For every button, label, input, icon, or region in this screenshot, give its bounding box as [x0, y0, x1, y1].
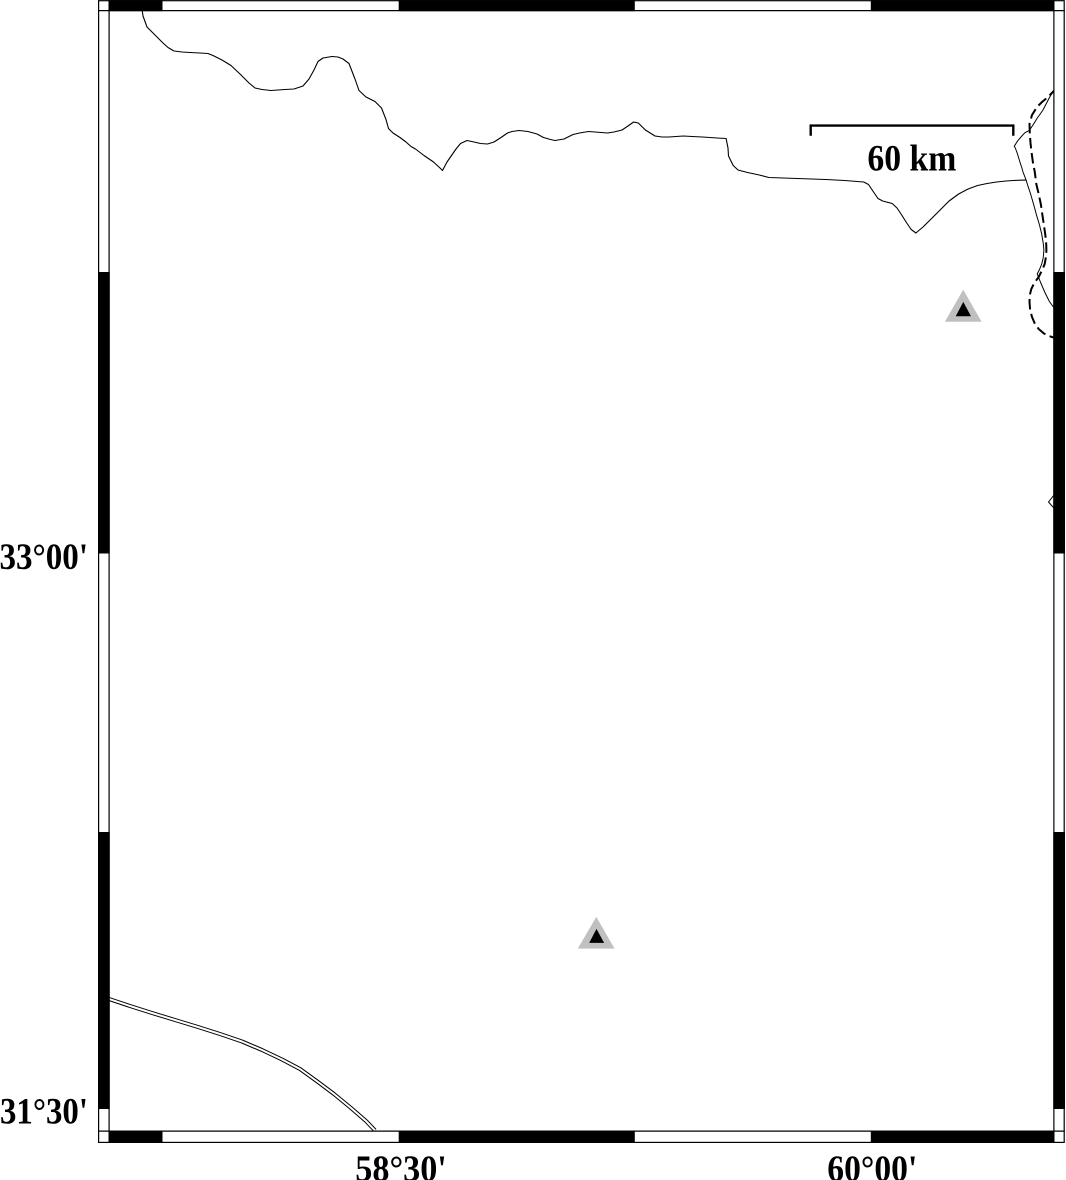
svg-text:60°00': 60°00' — [827, 1149, 917, 1180]
svg-text:31°30': 31°30' — [0, 1092, 88, 1133]
svg-text:58°30': 58°30' — [355, 1149, 447, 1180]
svg-text:60 km: 60 km — [867, 139, 956, 180]
svg-text:33°00': 33°00' — [0, 537, 88, 578]
